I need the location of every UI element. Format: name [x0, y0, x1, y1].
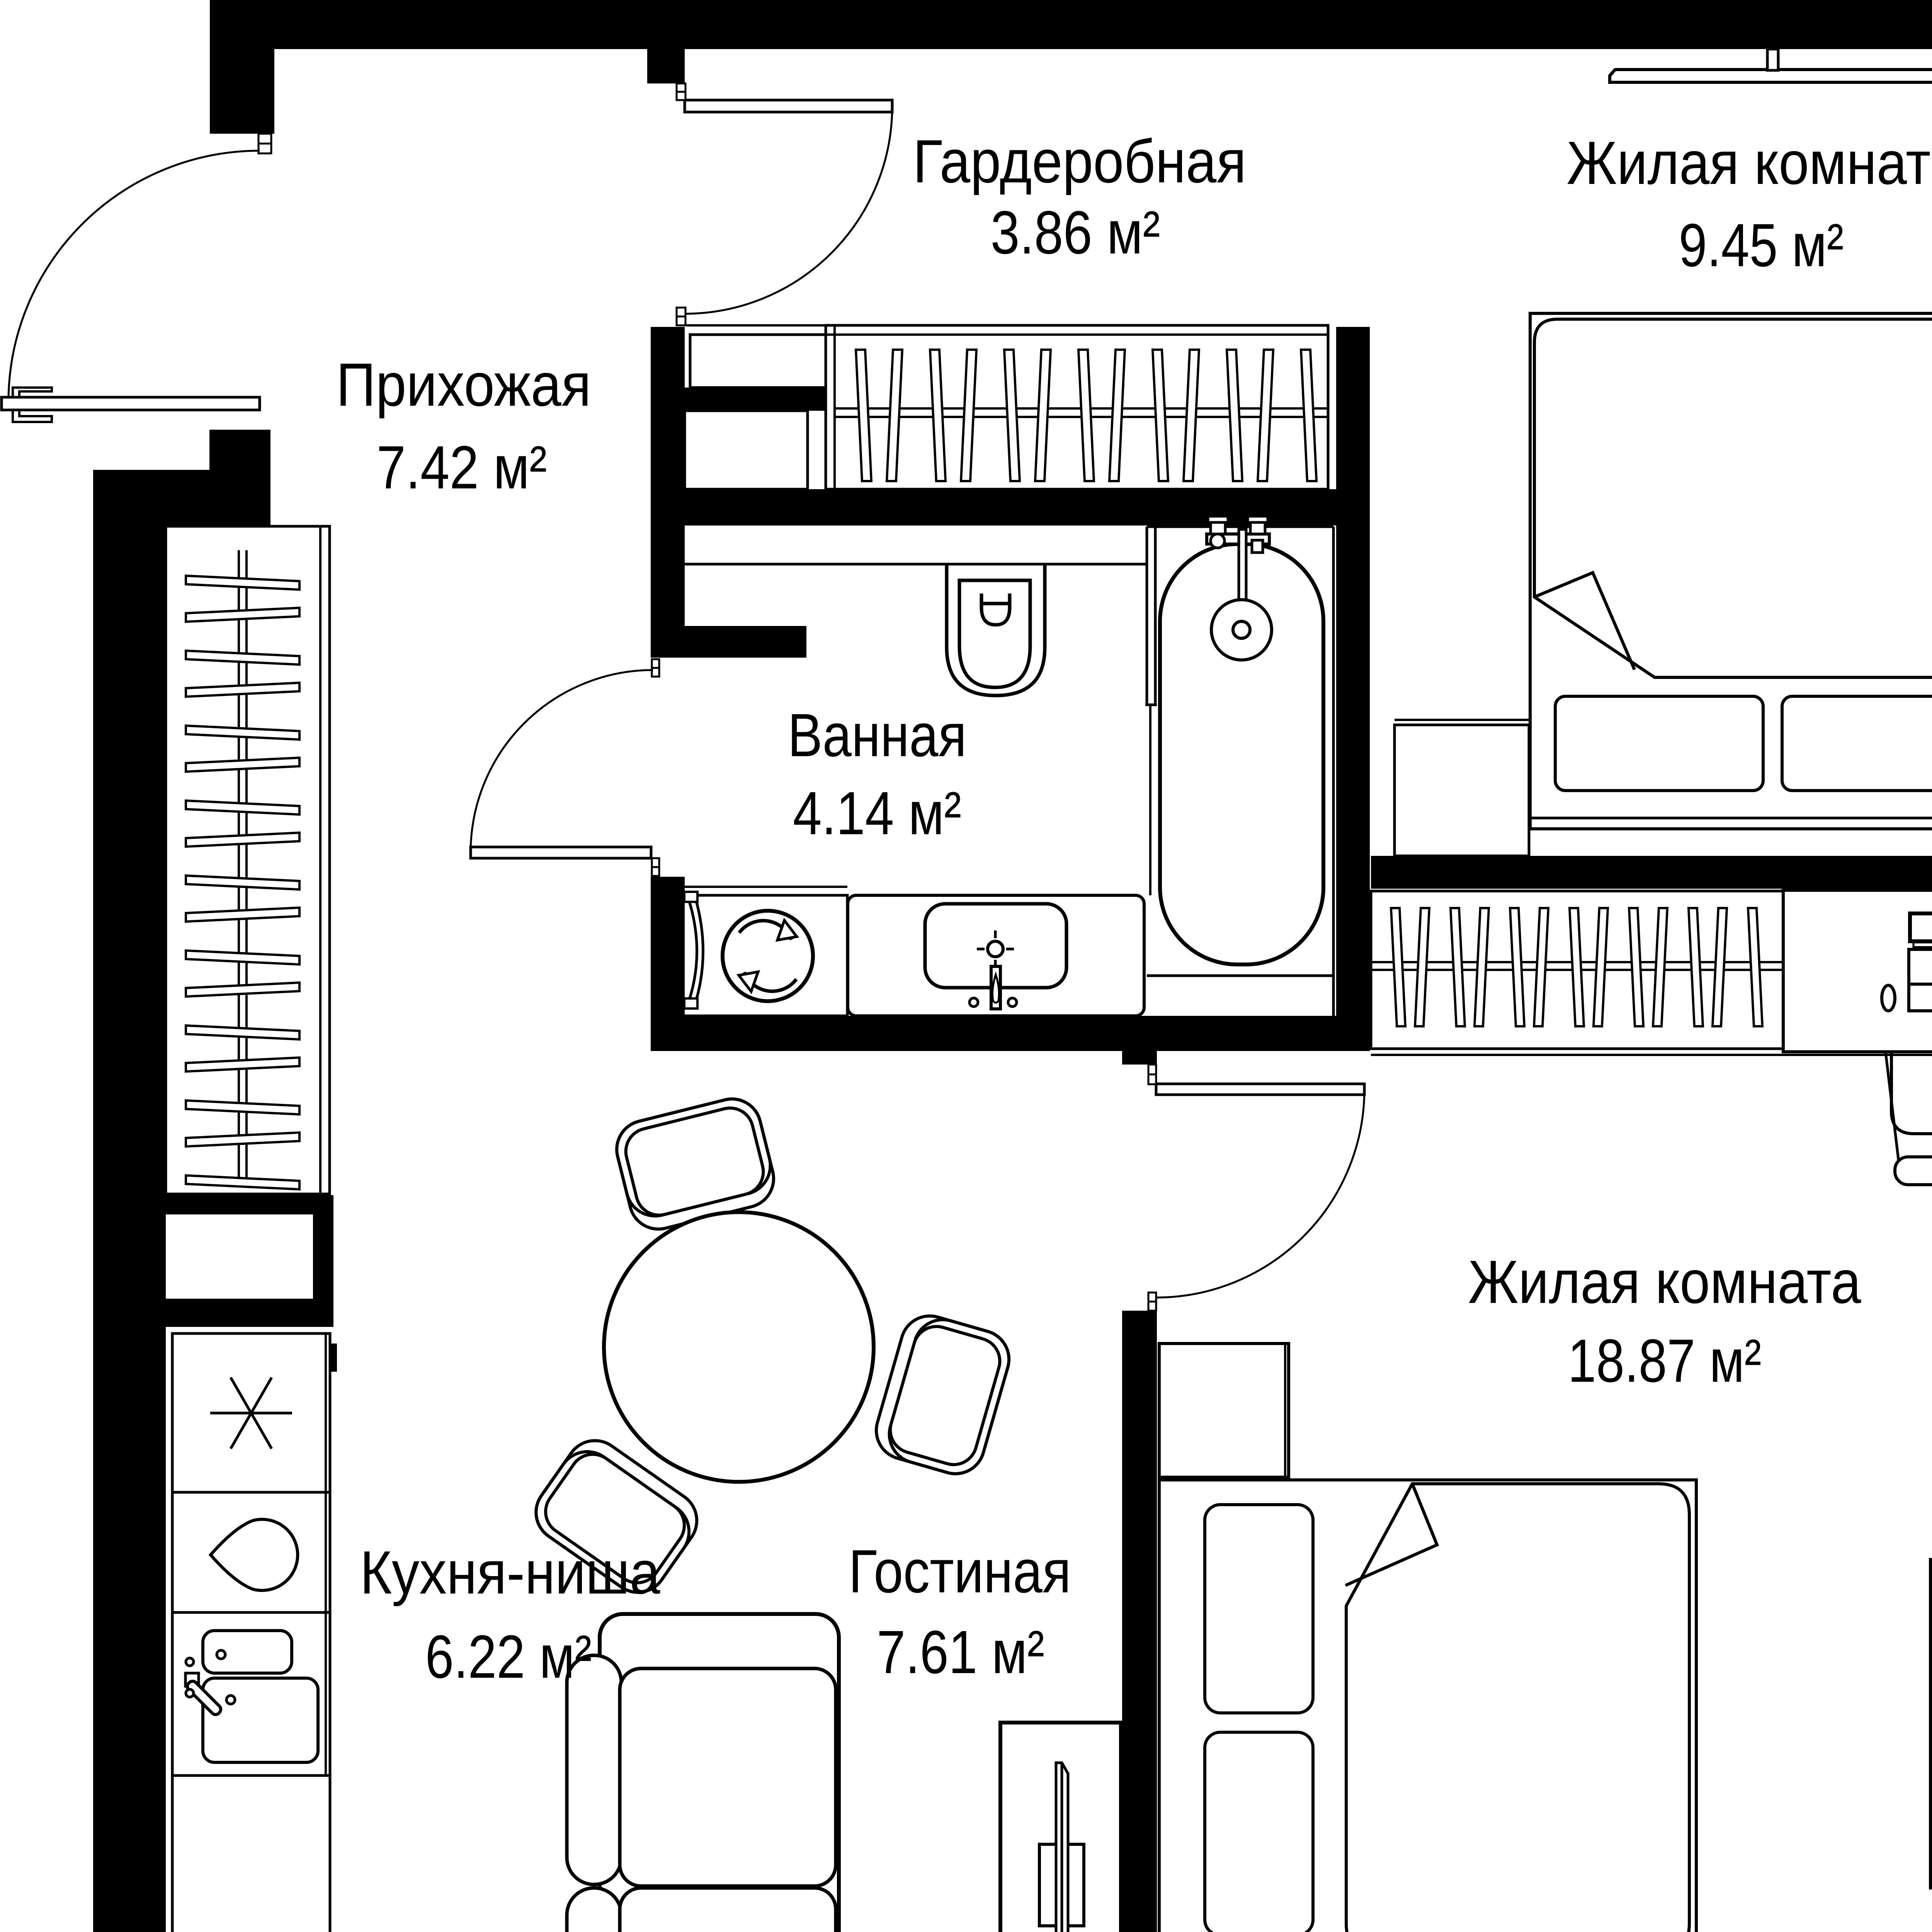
svg-text:Кухня-ниша: Кухня-ниша [360, 1539, 660, 1607]
svg-text:Ванная: Ванная [788, 701, 967, 769]
svg-text:Гардеробная: Гардеробная [913, 128, 1247, 196]
svg-text:Гостиная: Гостиная [849, 1537, 1071, 1605]
svg-text:6.22 м²: 6.22 м² [425, 1623, 592, 1691]
svg-text:7.61 м²: 7.61 м² [877, 1618, 1044, 1686]
svg-text:Прихожая: Прихожая [336, 351, 591, 419]
svg-text:Жилая комната: Жилая комната [1468, 1248, 1861, 1316]
svg-text:9.45 м²: 9.45 м² [1679, 211, 1844, 279]
svg-text:3.86 м²: 3.86 м² [991, 199, 1160, 267]
svg-text:18.87 м²: 18.87 м² [1568, 1327, 1762, 1395]
svg-text:7.42 м²: 7.42 м² [377, 434, 547, 502]
svg-text:4.14 м²: 4.14 м² [793, 779, 961, 847]
svg-text:Жилая комната: Жилая комната [1567, 129, 1932, 197]
